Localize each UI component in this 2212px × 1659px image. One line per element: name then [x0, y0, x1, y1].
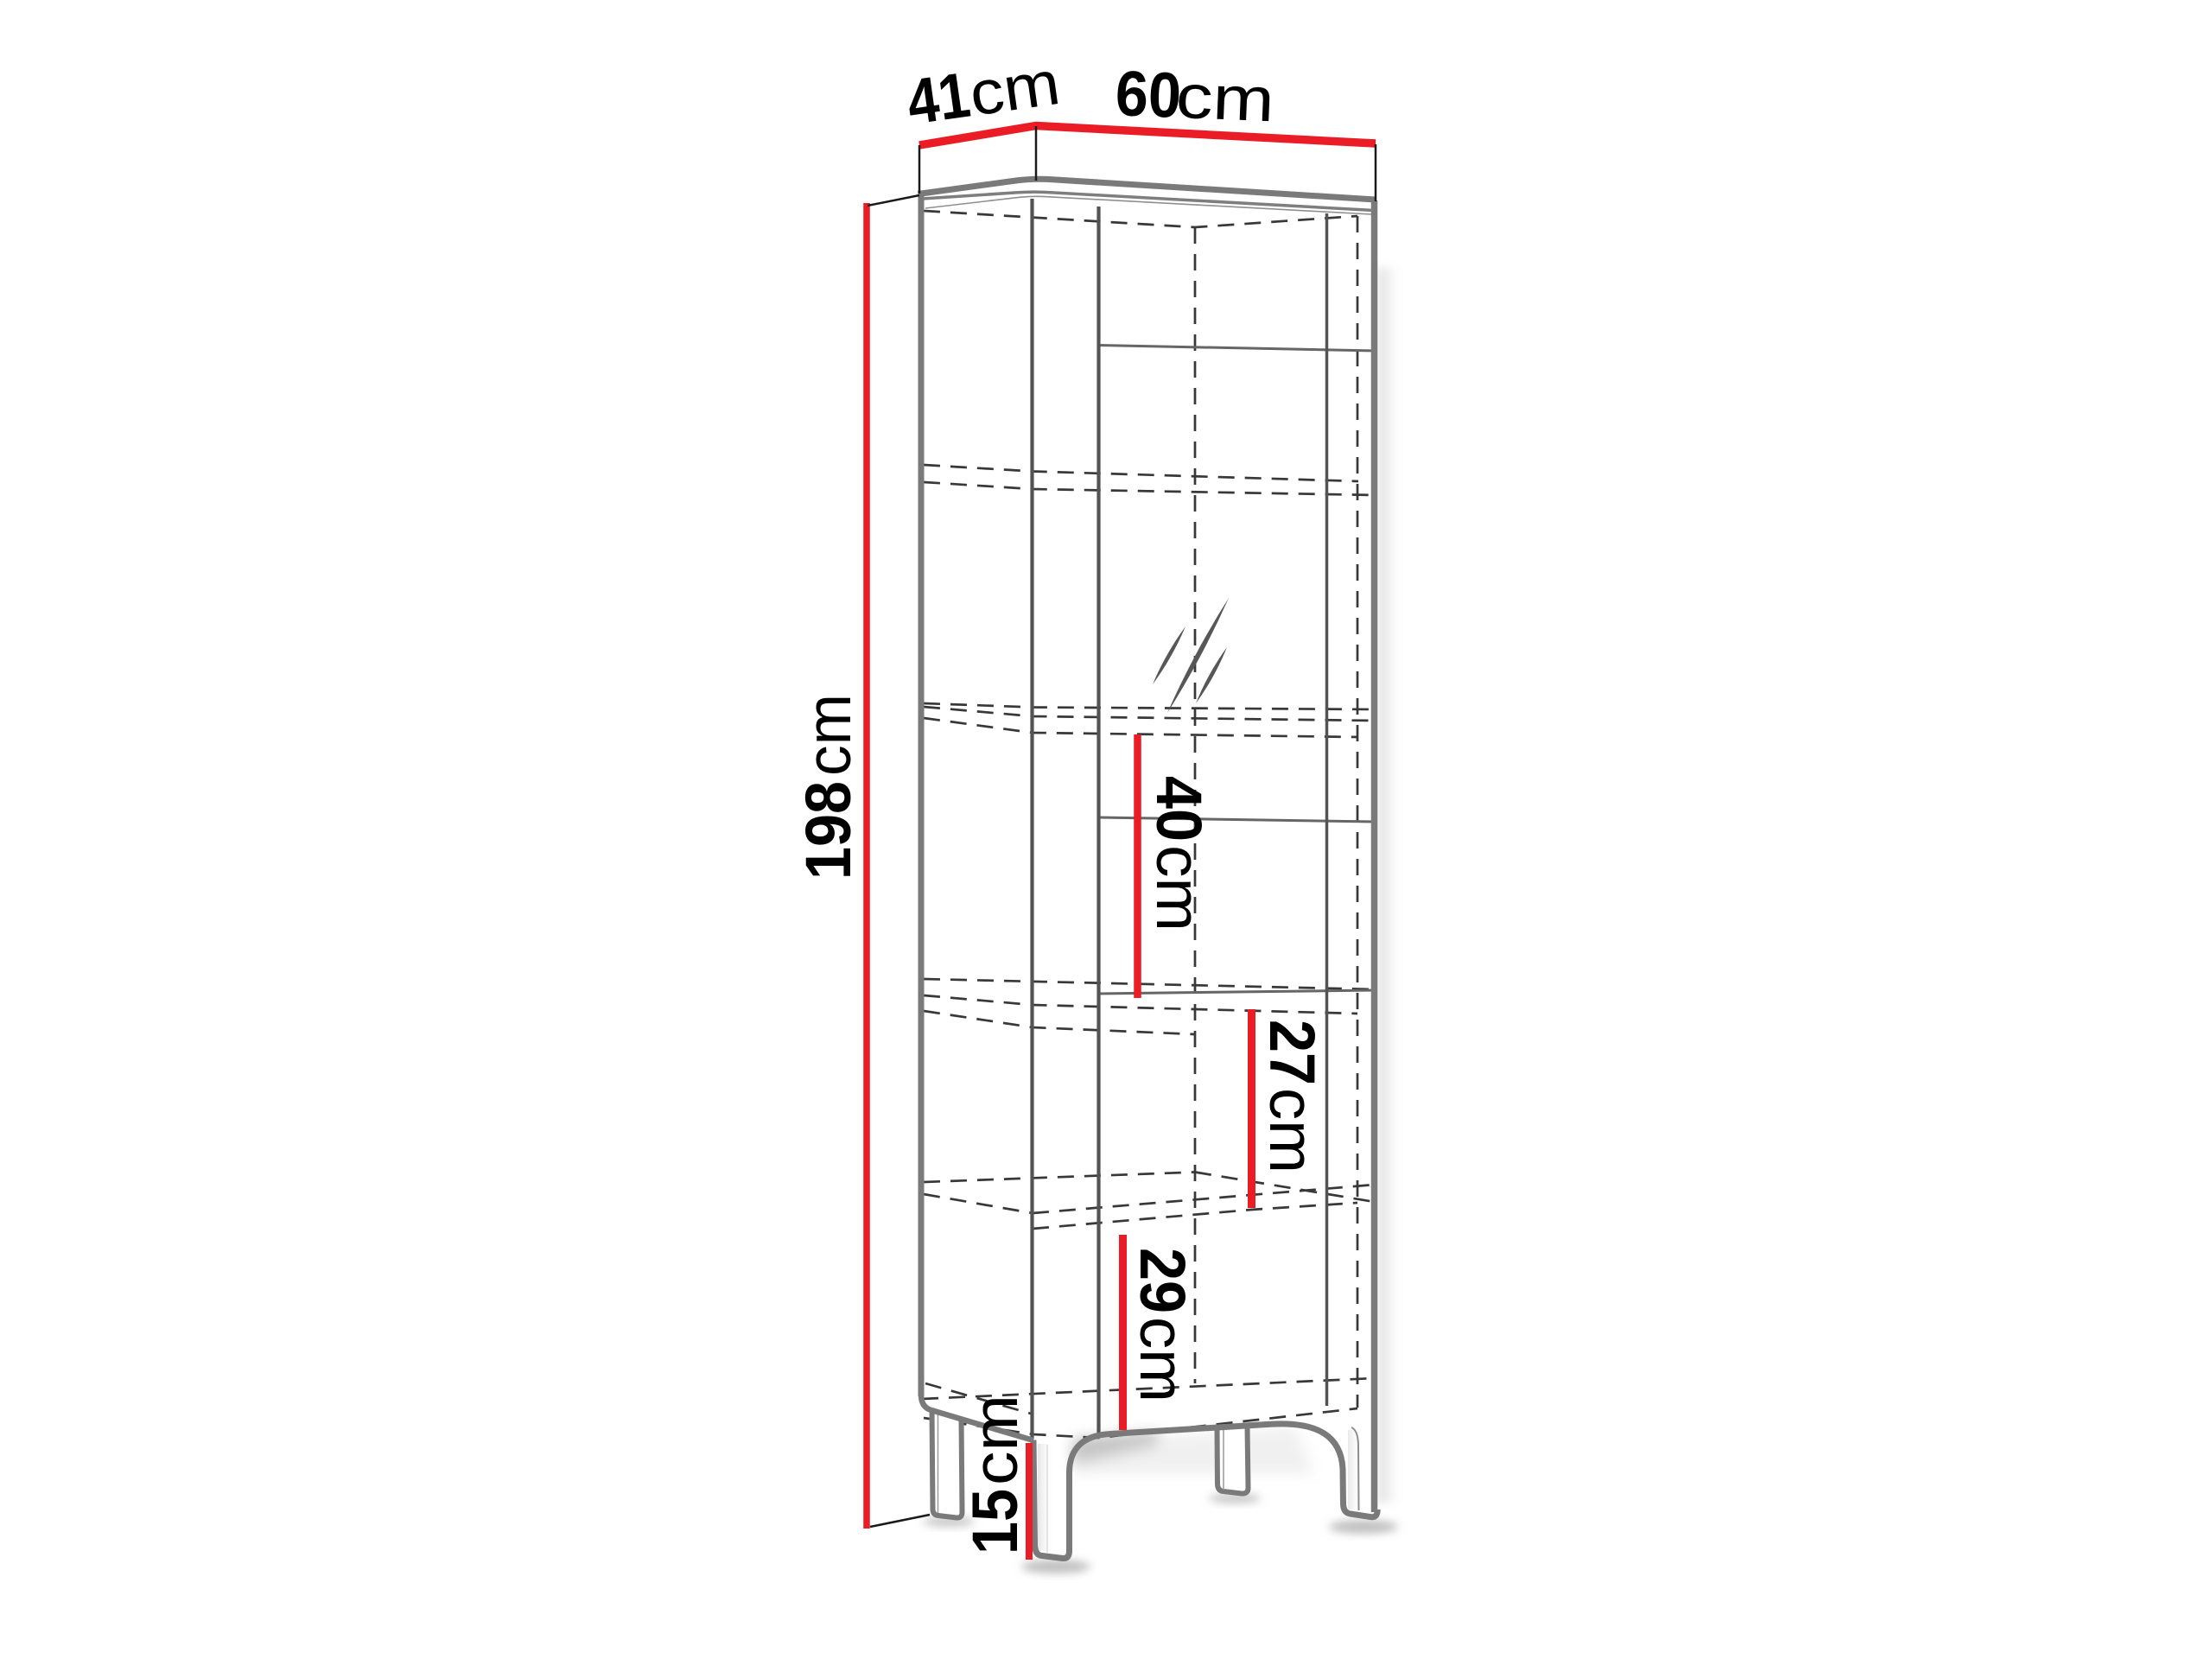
svg-text:cm: cm: [1174, 62, 1275, 136]
svg-text:41: 41: [903, 59, 975, 138]
svg-text:198: 198: [792, 781, 864, 880]
svg-text:cm: cm: [1143, 845, 1213, 931]
svg-text:60: 60: [1114, 57, 1182, 131]
svg-text:27: 27: [1256, 1020, 1328, 1085]
svg-text:cm: cm: [961, 1395, 1031, 1485]
svg-text:cm: cm: [794, 694, 864, 776]
svg-text:cm: cm: [1256, 1088, 1326, 1173]
svg-text:29: 29: [1127, 1248, 1198, 1313]
svg-text:cm: cm: [965, 48, 1064, 130]
svg-text:40: 40: [1143, 776, 1215, 842]
svg-text:15: 15: [959, 1489, 1031, 1554]
svg-text:cm: cm: [1127, 1317, 1197, 1402]
